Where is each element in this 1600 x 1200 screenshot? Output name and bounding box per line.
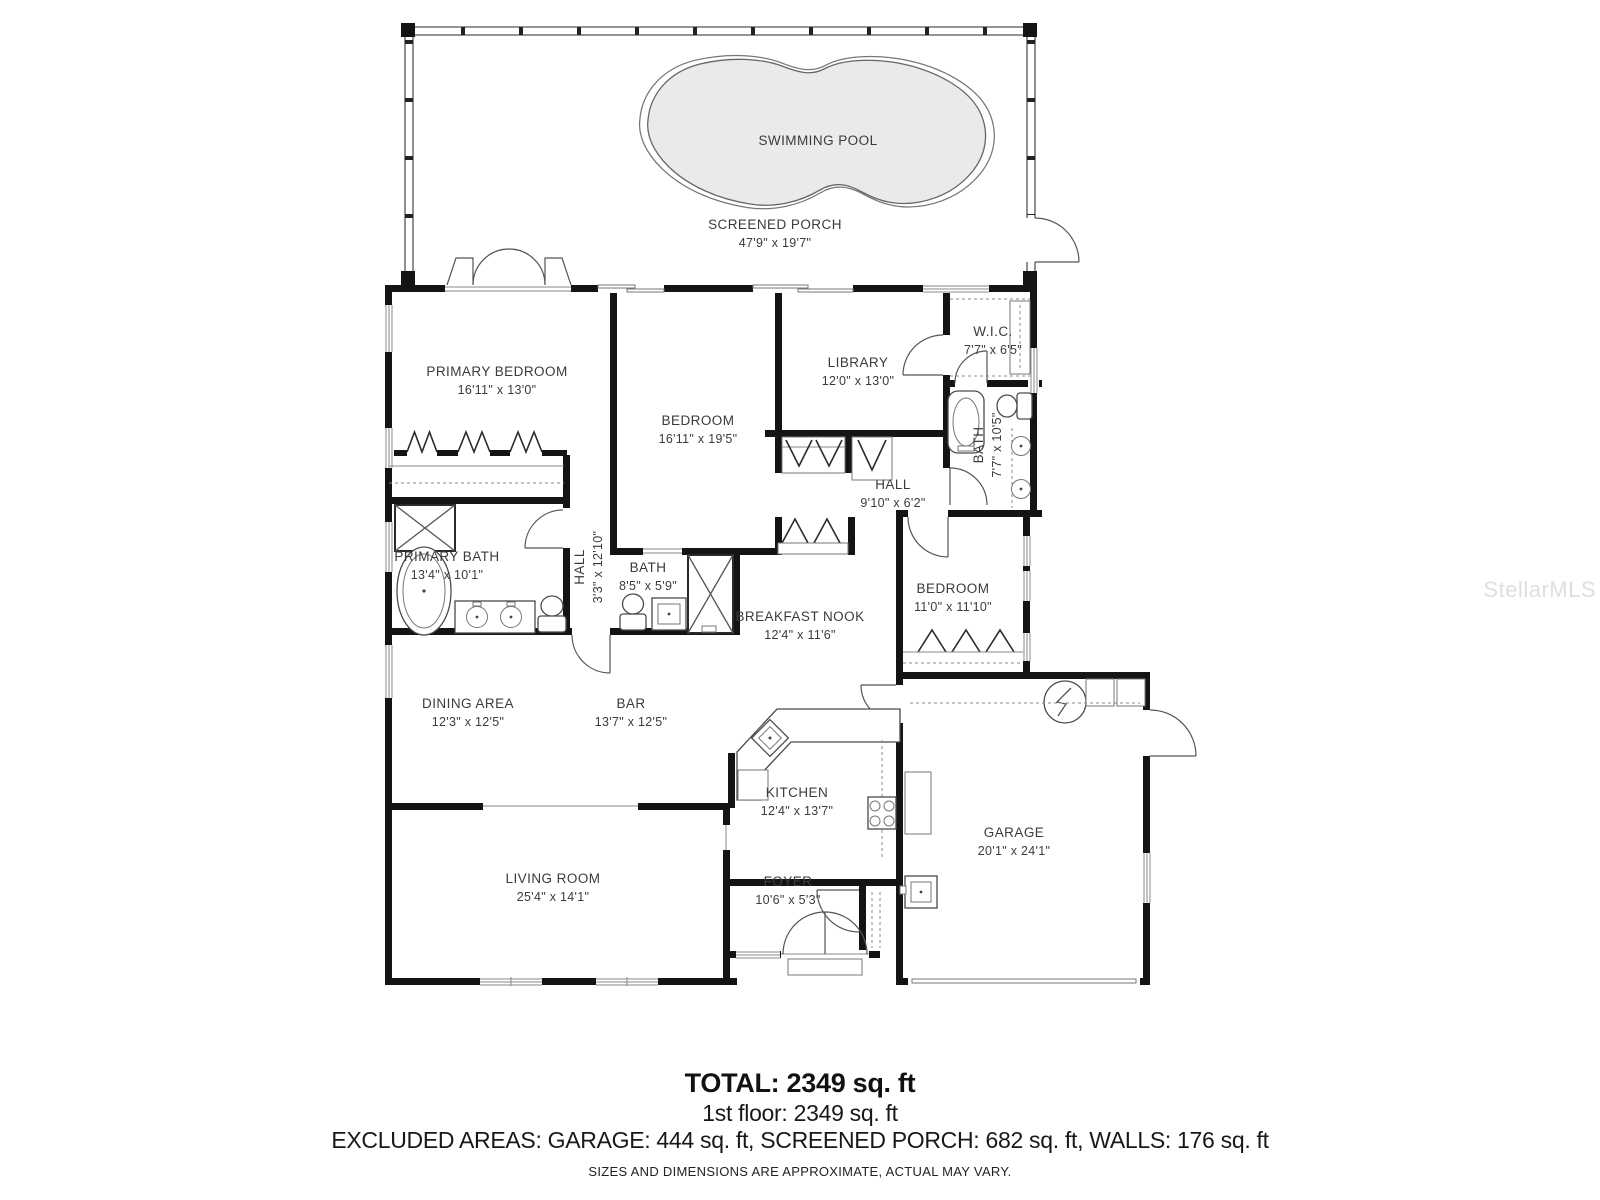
- porch-corner-post: [401, 271, 415, 285]
- bar-dims: 13'7" x 12'5": [595, 715, 667, 729]
- watermark: StellarMLS: [1483, 577, 1596, 602]
- water-heater: [1044, 681, 1086, 723]
- stove: [868, 797, 896, 829]
- screened-porch-dims: 47'9" x 19'7": [739, 236, 811, 250]
- footer-floor1: 1st floor: 2349 sq. ft: [702, 1100, 898, 1126]
- floor-plan-page: SWIMMING POOL SCREENED PORCH 47'9" x 19'…: [0, 0, 1600, 1200]
- bedroom2-label: BEDROOM: [662, 413, 735, 428]
- kitchen-dims: 12'4" x 13'7": [761, 804, 833, 818]
- bedroom3-label: BEDROOM: [917, 581, 990, 596]
- library-dims: 12'0" x 13'0": [822, 374, 894, 388]
- bedroom3-dims: 11'0" x 11'10": [914, 600, 992, 614]
- washer: [1086, 679, 1114, 706]
- footer-total: TOTAL: 2349 sq. ft: [685, 1068, 916, 1098]
- bedroom2-dims: 16'11" x 19'5": [659, 432, 738, 446]
- kitchen-label: KITCHEN: [766, 785, 828, 800]
- hall-upper-dims: 9'10" x 6'2": [860, 496, 925, 510]
- bath2-dims: 8'5" x 5'9": [619, 579, 677, 593]
- swimming-pool-label: SWIMMING POOL: [758, 133, 877, 148]
- dining-area-dims: 12'3" x 12'5": [432, 715, 504, 729]
- dining-area-label: DINING AREA: [422, 696, 514, 711]
- wic-label: W.I.C.: [973, 324, 1012, 339]
- dryer: [1117, 679, 1145, 706]
- garage-label: GARAGE: [984, 825, 1044, 840]
- porch-corner-post: [401, 23, 415, 37]
- library-label: LIBRARY: [828, 355, 889, 370]
- vanity-double-sink: [1012, 428, 1031, 508]
- toilet: [620, 594, 646, 630]
- garage-door: [912, 979, 1136, 983]
- foyer-label: FOYER: [764, 874, 813, 889]
- shower: [395, 505, 455, 551]
- footer-excluded: EXCLUDED AREAS: GARAGE: 444 sq. ft, SCRE…: [331, 1127, 1269, 1153]
- entry-stoop: [788, 959, 862, 975]
- porch-corner-post: [1023, 271, 1037, 285]
- living-room-dims: 25'4" x 14'1": [517, 890, 589, 904]
- floor-plan: SWIMMING POOL SCREENED PORCH 47'9" x 19'…: [0, 0, 1600, 1200]
- porch-corner-post: [1023, 23, 1037, 37]
- screened-porch: SWIMMING POOL SCREENED PORCH 47'9" x 19'…: [401, 23, 1079, 285]
- screened-porch-label: SCREENED PORCH: [708, 217, 842, 232]
- french-door: [447, 249, 571, 285]
- porch-door: [1035, 218, 1079, 262]
- bath-main-label: BATH: [971, 427, 986, 464]
- footer-disclaimer: SIZES AND DIMENSIONS ARE APPROXIMATE, AC…: [588, 1164, 1011, 1179]
- hall-lower-label: HALL: [572, 549, 587, 585]
- kitchen-cabinet: [738, 770, 768, 800]
- footer: TOTAL: 2349 sq. ft 1st floor: 2349 sq. f…: [331, 1068, 1269, 1179]
- bar-label: BAR: [616, 696, 645, 711]
- garage-workbench: [905, 772, 931, 834]
- living-room-label: LIVING ROOM: [506, 871, 601, 886]
- vanity-double-sink: [455, 601, 535, 633]
- primary-bath-dims: 13'4" x 10'1": [411, 568, 483, 582]
- bath-main-dims: 7'7" x 10'5": [990, 412, 1004, 477]
- wic-dims: 7'7" x 6'5": [964, 343, 1022, 357]
- foyer-dims: 10'6" x 5'3": [755, 893, 820, 907]
- hall-lower-dims: 3'3" x 12'10": [591, 531, 605, 603]
- sink: [652, 598, 686, 630]
- garage-side-door: [1150, 710, 1196, 756]
- garage-dims: 20'1" x 24'1": [978, 844, 1050, 858]
- entry-double-door: [783, 912, 867, 954]
- utility-sink: [900, 876, 937, 908]
- toilet: [538, 596, 566, 632]
- bath2-label: BATH: [630, 560, 667, 575]
- primary-bedroom-label: PRIMARY BEDROOM: [426, 364, 567, 379]
- primary-bath-label: PRIMARY BATH: [394, 549, 499, 564]
- hall-upper-label: HALL: [875, 477, 911, 492]
- shower: [688, 555, 733, 633]
- breakfast-nook-label: BREAKFAST NOOK: [735, 609, 864, 624]
- breakfast-nook-dims: 12'4" x 11'6": [764, 628, 836, 642]
- primary-bedroom-dims: 16'11" x 13'0": [458, 383, 537, 397]
